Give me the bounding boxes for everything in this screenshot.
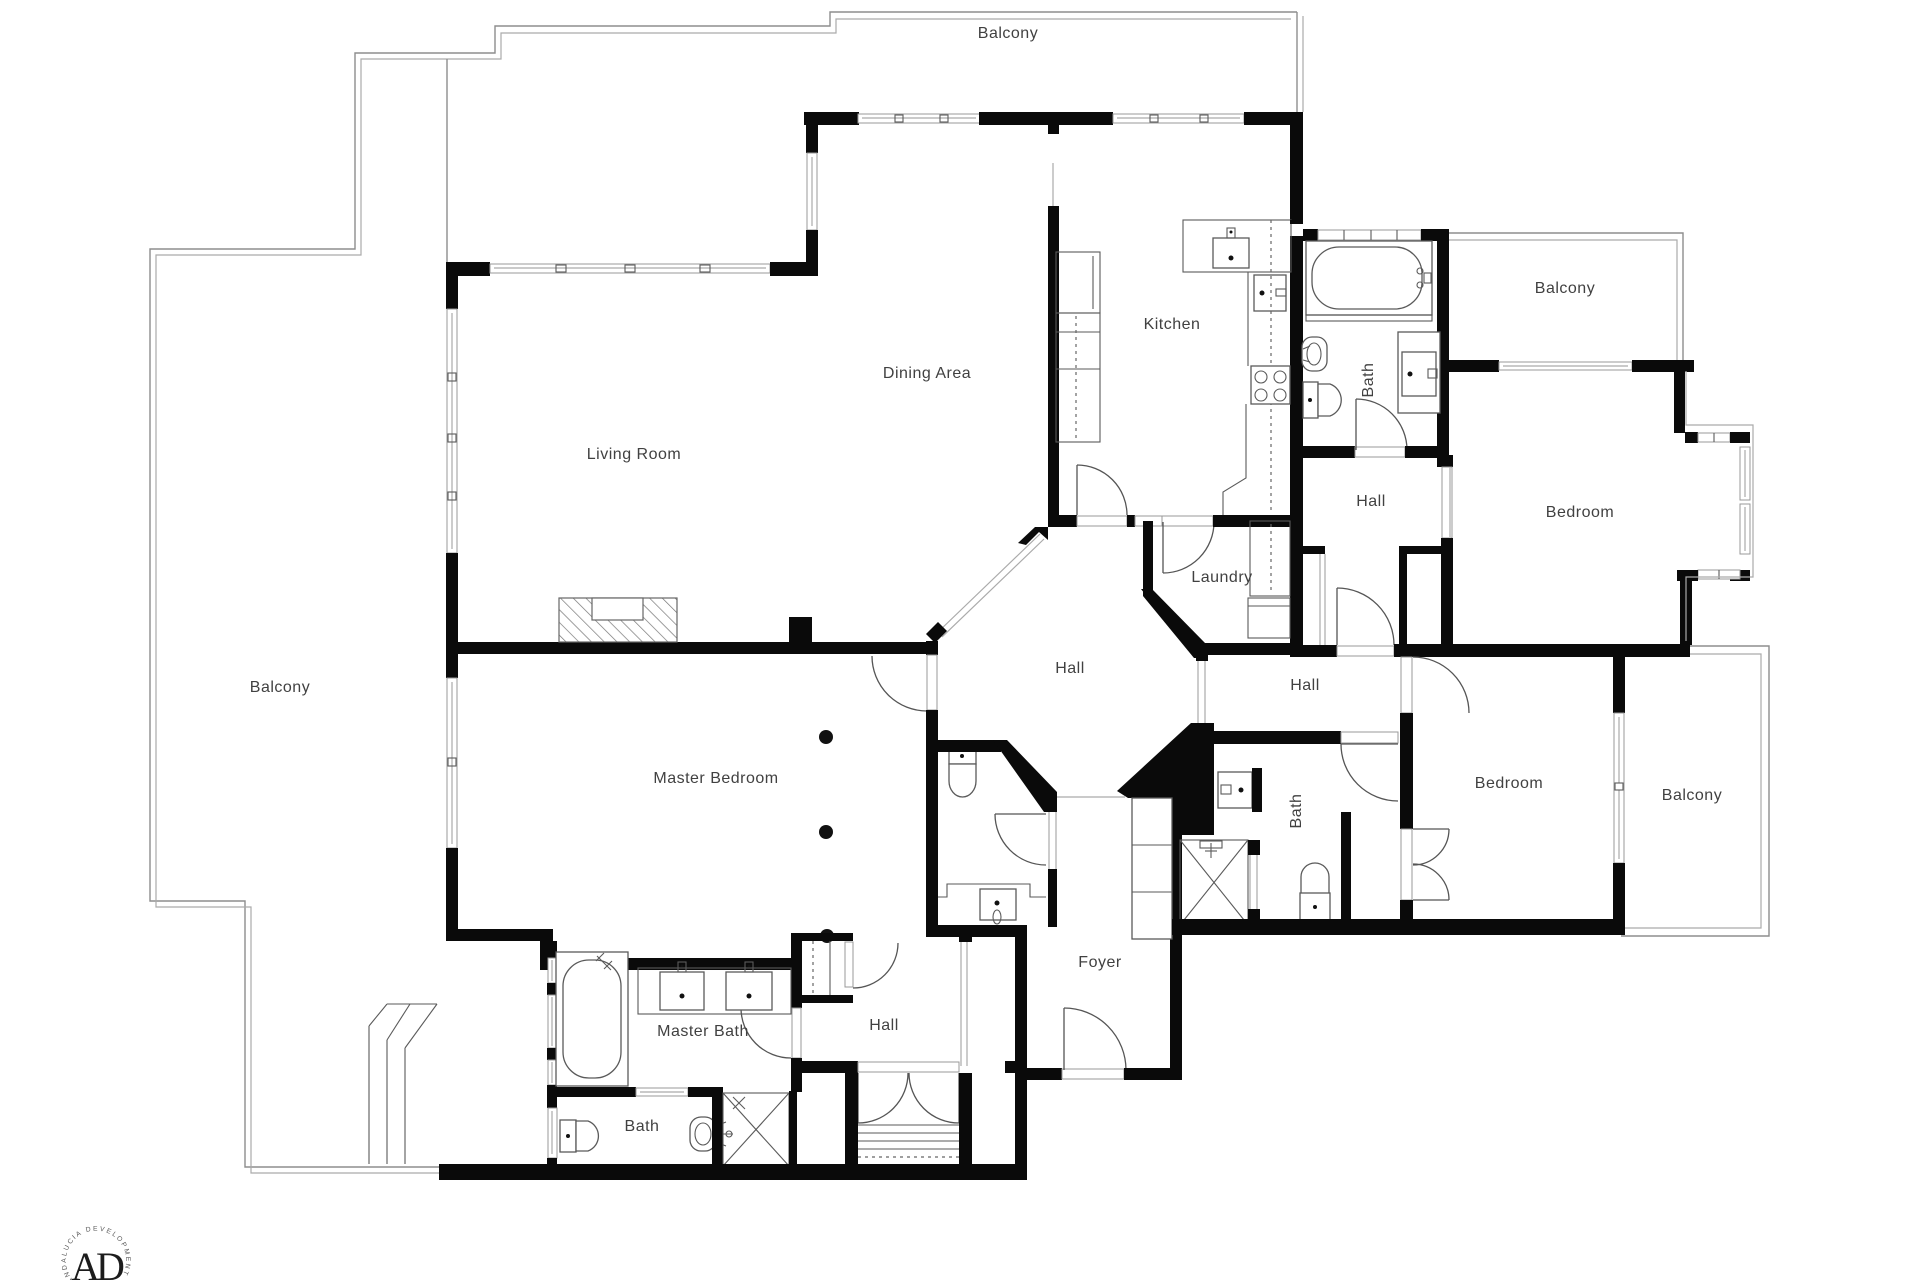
svg-text:AD: AD	[71, 1244, 124, 1280]
svg-text:Hall: Hall	[1290, 677, 1320, 694]
svg-text:Bath: Bath	[1360, 363, 1377, 398]
svg-text:Foyer: Foyer	[1078, 954, 1122, 971]
svg-text:Bedroom: Bedroom	[1475, 775, 1543, 792]
svg-text:Balcony: Balcony	[978, 25, 1038, 42]
svg-text:Balcony: Balcony	[1535, 280, 1595, 297]
svg-text:Balcony: Balcony	[250, 679, 310, 696]
svg-text:Dining Area: Dining Area	[883, 365, 971, 382]
svg-text:Kitchen: Kitchen	[1144, 316, 1201, 333]
svg-text:Hall: Hall	[1356, 493, 1386, 510]
svg-text:Bedroom: Bedroom	[1546, 504, 1614, 521]
svg-text:Hall: Hall	[869, 1017, 899, 1034]
svg-text:Balcony: Balcony	[1662, 787, 1722, 804]
svg-text:Living Room: Living Room	[587, 446, 681, 463]
svg-text:Bath: Bath	[1288, 794, 1305, 829]
svg-text:Master Bath: Master Bath	[657, 1023, 749, 1040]
svg-text:Master Bedroom: Master Bedroom	[653, 770, 778, 787]
svg-text:Laundry: Laundry	[1191, 569, 1252, 586]
svg-text:Bath: Bath	[625, 1118, 660, 1135]
svg-text:Hall: Hall	[1055, 660, 1085, 677]
